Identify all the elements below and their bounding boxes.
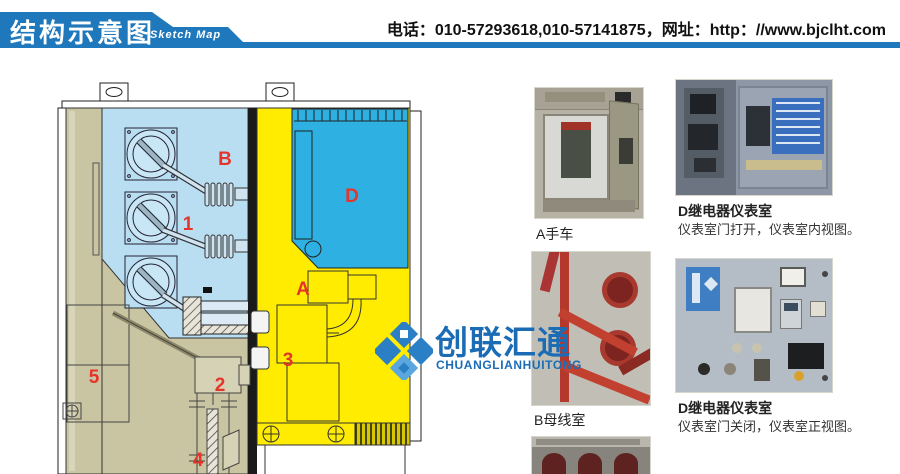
company-watermark: 创联汇通 CHUANGLIANHUITONG xyxy=(375,316,575,396)
photo-a-handcart xyxy=(535,88,643,218)
zone-label-3: 3 xyxy=(283,350,294,371)
cabinet-top-panel xyxy=(62,101,410,108)
page-title: 结构示意图 xyxy=(10,13,155,50)
zone-label-A: A xyxy=(296,279,310,300)
bushing-group xyxy=(125,128,177,308)
photo-d-open-sub: 仪表室门打开，仪表室内视图。 xyxy=(678,219,860,238)
photo-d-closed xyxy=(676,259,832,392)
zone-label-5: 5 xyxy=(89,367,100,388)
photo-d-closed-sub: 仪表室门关闭，仪表室正视图。 xyxy=(678,416,860,435)
zone-label-D: D xyxy=(345,186,359,207)
photo-d-open xyxy=(676,80,832,195)
page-title-en: Sketch Map xyxy=(150,29,221,41)
photo-b-caption: B母线室 xyxy=(534,410,585,430)
catalog-page: 结构示意图 Sketch Map 电话：010-57293618,010-571… xyxy=(0,0,900,474)
zone-label-1: 1 xyxy=(183,214,194,235)
zone-label-4: 4 xyxy=(193,450,204,471)
photo-d-closed-title: D继电器仪表室 xyxy=(678,398,772,418)
company-name-cn: 创联汇通 xyxy=(435,316,571,364)
zone-label-2: 2 xyxy=(215,375,226,396)
photo-bottom-partial xyxy=(532,437,650,474)
mounting-lug-left xyxy=(100,83,128,103)
switchgear-diagram: B D 1 A 3 2 5 4 xyxy=(55,75,430,474)
company-name-en: CHUANGLIANHUITONG xyxy=(436,358,582,372)
mounting-lug-right xyxy=(266,83,294,103)
contact-info: 电话：010-57293618,010-57141875，网址：http：//w… xyxy=(387,16,886,40)
contact-stub-upper xyxy=(251,311,269,333)
base-bar xyxy=(257,423,410,474)
company-logo-icon xyxy=(375,322,433,380)
photo-d-open-title: D继电器仪表室 xyxy=(678,201,772,221)
cabinet-divider xyxy=(248,108,257,474)
zone-label-B: B xyxy=(218,149,232,170)
photo-a-caption: A手车 xyxy=(536,224,573,244)
contact-stub-lower xyxy=(251,347,269,369)
